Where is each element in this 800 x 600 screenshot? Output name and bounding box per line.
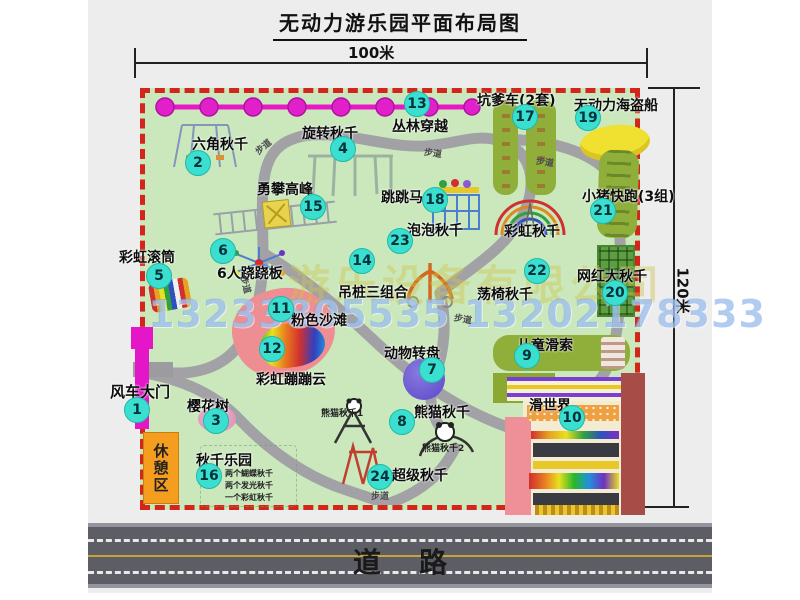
attraction-badge-13: 13 — [404, 91, 430, 117]
attraction-badge-23: 23 — [387, 228, 413, 254]
extra-label: 两个发光秋千 — [225, 480, 273, 491]
attraction-badge-4: 4 — [330, 136, 356, 162]
attraction-badge-3: 3 — [203, 408, 229, 434]
attraction-badge-7: 7 — [419, 357, 445, 383]
attraction-badge-9: 9 — [514, 343, 540, 369]
attraction-badge-17: 17 — [512, 104, 538, 130]
extra-label: 彩虹秋千 — [504, 221, 560, 241]
attraction-badge-1: 1 — [124, 397, 150, 423]
attraction-label-11: 粉色沙滩 — [291, 310, 347, 330]
attraction-badge-20: 20 — [602, 280, 628, 306]
attraction-label-12: 彩虹蹦蹦云 — [256, 369, 326, 389]
plan-canvas: 无动力游乐园平面布局图 100米 120米 — [88, 0, 712, 593]
extra-label: 熊猫秋千2 — [422, 441, 464, 454]
attraction-badge-6: 6 — [210, 238, 236, 264]
attraction-badge-5: 5 — [146, 263, 172, 289]
attraction-badge-24: 24 — [367, 464, 393, 490]
attraction-badge-19: 19 — [575, 105, 601, 131]
extra-label: 一个彩虹秋千 — [225, 492, 273, 503]
attraction-label-24: 超级秋千 — [392, 465, 448, 485]
attraction-badge-18: 18 — [422, 187, 448, 213]
footpath-label: 步道 — [252, 136, 274, 158]
attraction-label-23: 泡泡秋千 — [407, 220, 463, 240]
page-title: 无动力游乐园平面布局图 — [88, 7, 712, 41]
attraction-label-22: 荡椅秋千 — [477, 284, 533, 304]
labels-overlay: 风车大门1六角秋千2樱花树3旋转秋千4彩虹滚筒56人跷跷板6动物转盘7熊猫秋千8… — [88, 0, 712, 593]
attraction-label-5: 彩虹滚筒 — [119, 247, 175, 267]
attraction-label-18: 跳跳马 — [381, 187, 423, 207]
attraction-badge-15: 15 — [300, 194, 326, 220]
footpath-label: 步道 — [453, 311, 473, 327]
attraction-badge-2: 2 — [185, 150, 211, 176]
attraction-label-14: 吊桩三组合 — [338, 282, 408, 302]
attraction-badge-8: 8 — [389, 409, 415, 435]
footpath-label: 步道 — [535, 154, 555, 169]
attraction-badge-10: 10 — [559, 405, 585, 431]
attraction-badge-21: 21 — [590, 198, 616, 224]
attraction-badge-11: 11 — [268, 296, 294, 322]
extra-label: 熊猫秋千1 — [321, 406, 363, 419]
attraction-badge-12: 12 — [259, 336, 285, 362]
attraction-badge-14: 14 — [349, 248, 375, 274]
attraction-badge-22: 22 — [524, 258, 550, 284]
extra-label: 两个蝴蝶秋千 — [225, 468, 273, 479]
attraction-label-8: 熊猫秋千 — [414, 402, 470, 422]
footpath-label: 步道 — [371, 489, 389, 502]
attraction-badge-16: 16 — [196, 463, 222, 489]
attraction-label-13: 丛林穿越 — [392, 116, 448, 136]
footpath-label: 步道 — [423, 145, 443, 160]
